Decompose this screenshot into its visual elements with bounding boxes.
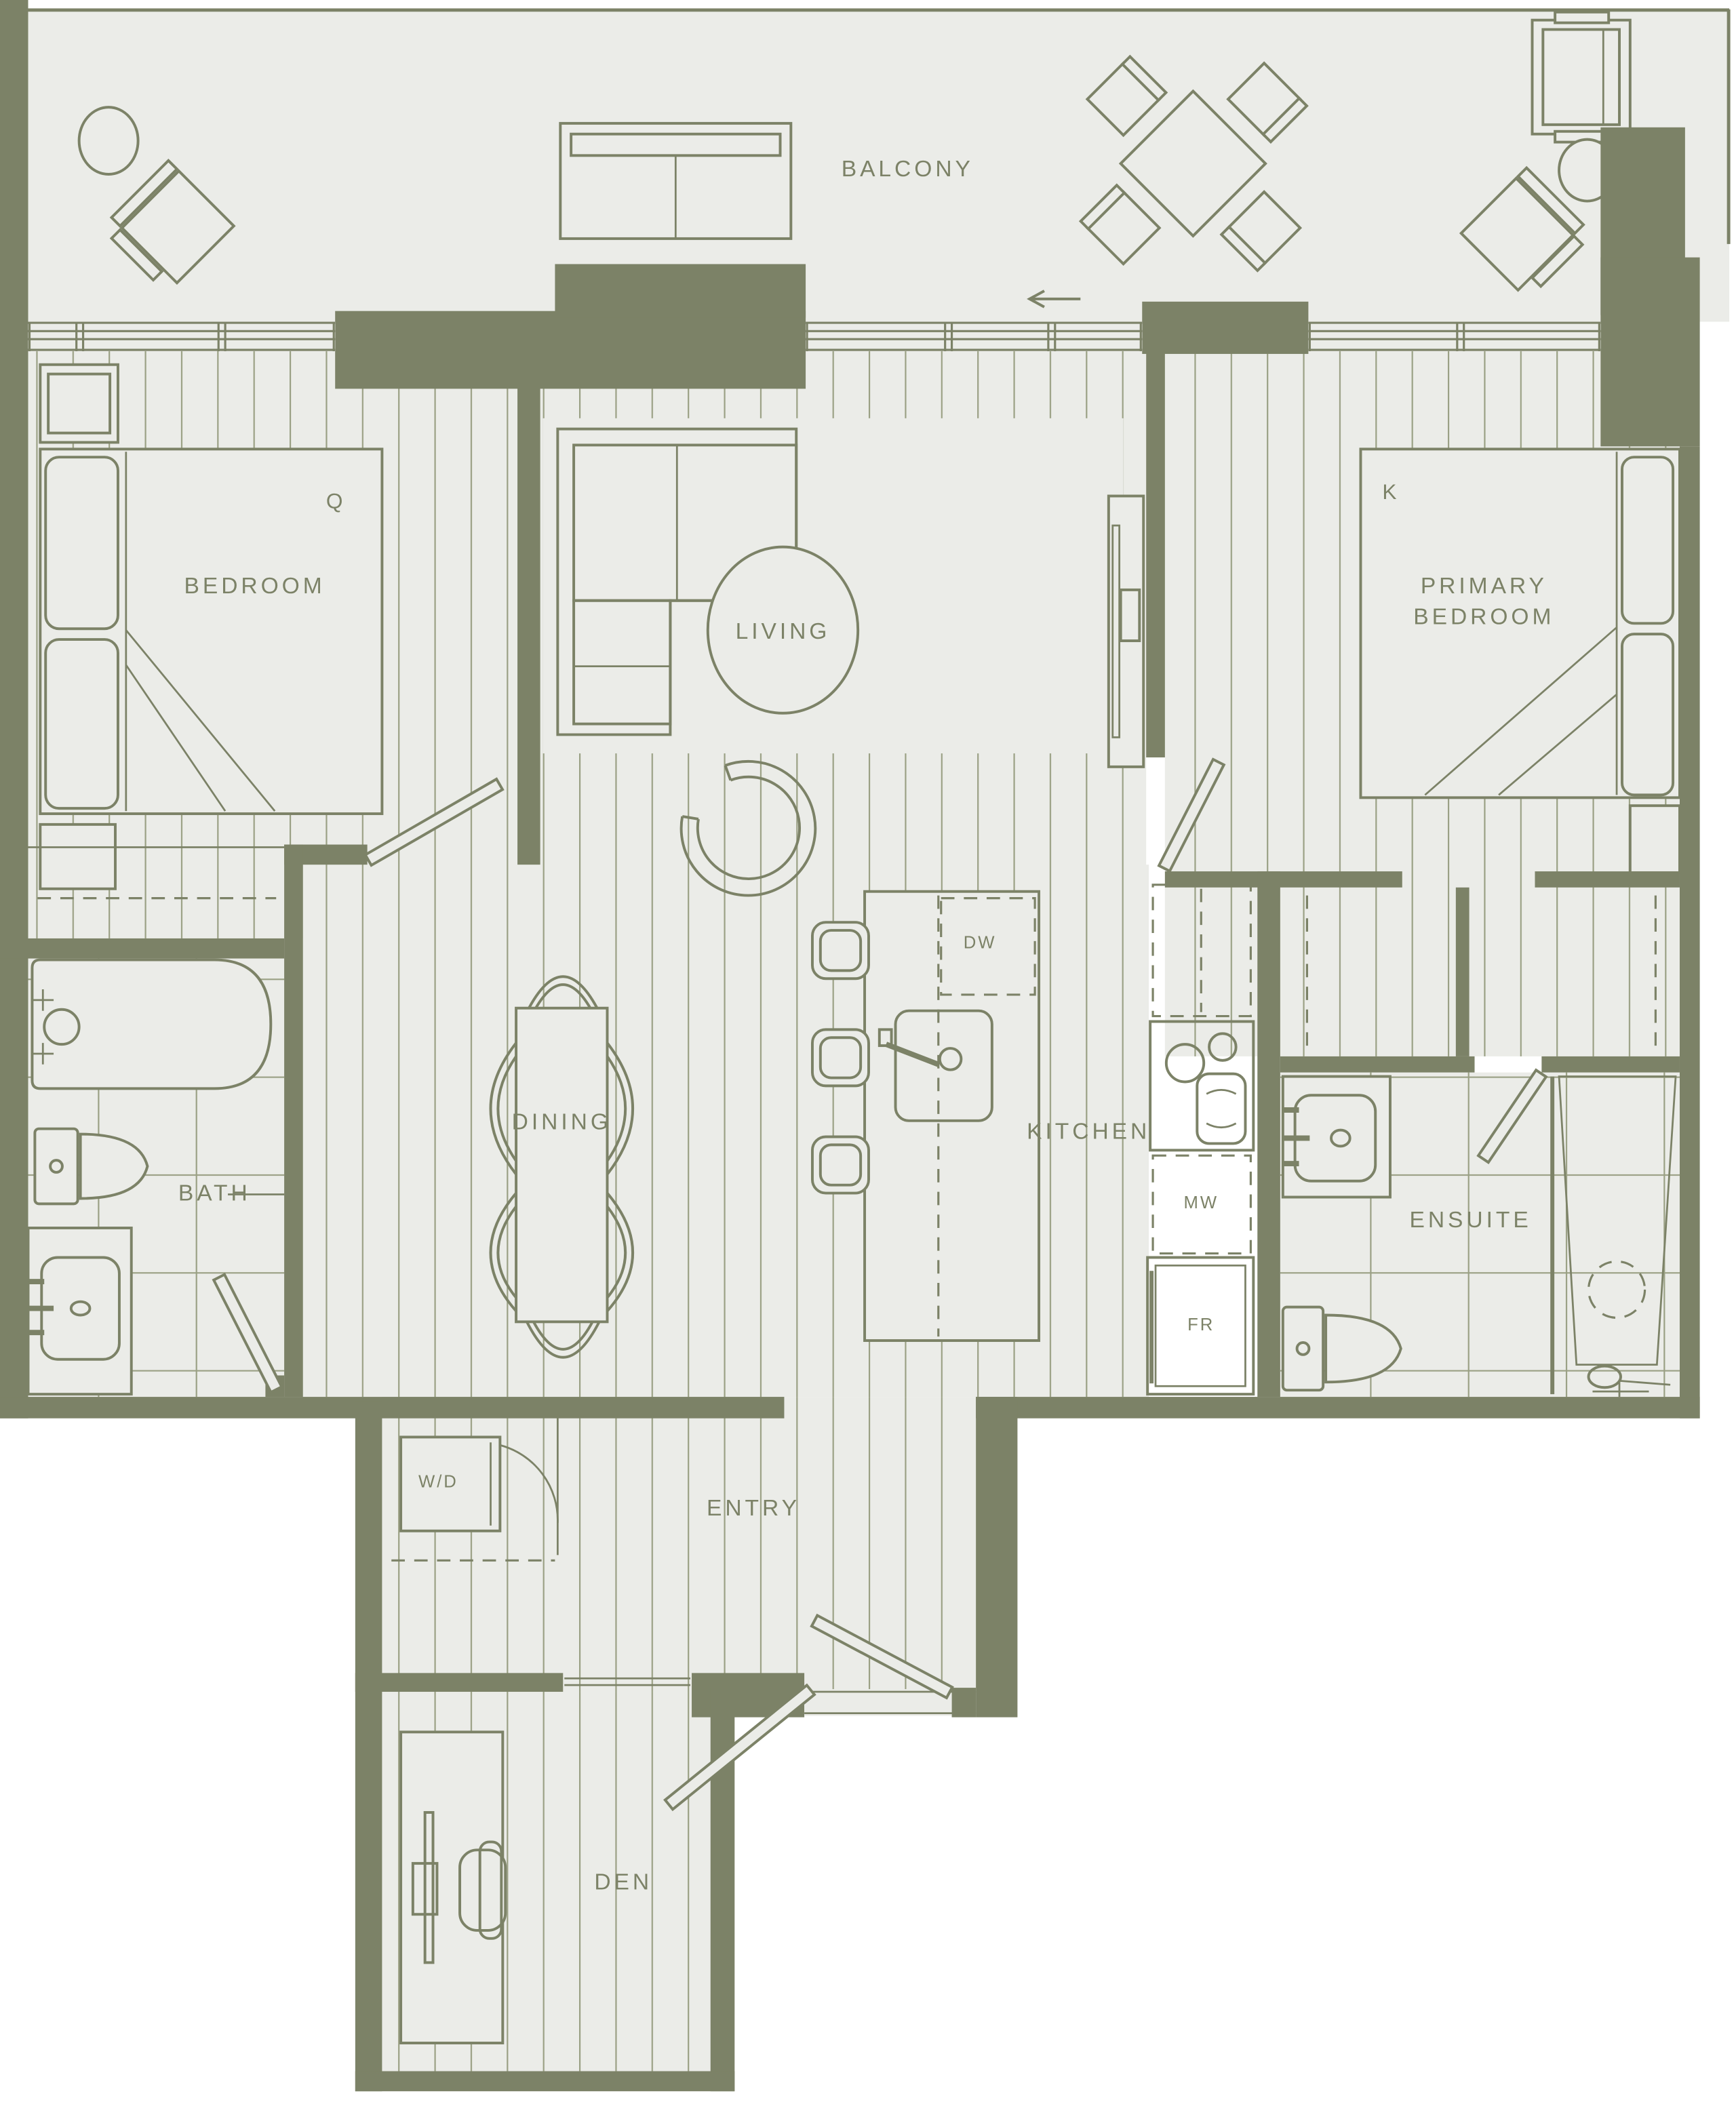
- room-label-kitchen: KITCHEN: [1027, 1119, 1150, 1144]
- room-label-bath: BATH: [178, 1181, 251, 1206]
- bedroom-nightstand-bottom: [40, 825, 115, 889]
- room-label-bedroom: BEDROOM: [184, 574, 325, 599]
- bed-size-label: K: [1382, 479, 1398, 504]
- room-label-primary-1: PRIMARY: [1421, 574, 1547, 599]
- microwave-label: MW: [1183, 1193, 1219, 1212]
- room-label-dining: DINING: [512, 1110, 612, 1135]
- bathtub: [32, 960, 271, 1089]
- primary-nightstand-bottom: [1630, 806, 1680, 873]
- bed-size-label: Q: [326, 489, 344, 513]
- room-label-entry: ENTRY: [707, 1496, 800, 1521]
- room-label-balcony: BALCONY: [842, 157, 974, 182]
- dishwasher-label: DW: [964, 934, 997, 953]
- kitchen-island: [865, 892, 1039, 1341]
- window-bedroom: [28, 321, 336, 351]
- floor-plan: BALCONY LIVING: [0, 0, 1736, 2102]
- bath-vanity: [28, 1228, 132, 1394]
- dining-table: [516, 1008, 607, 1322]
- bar-stools: [812, 922, 869, 1193]
- window-primary: [1308, 321, 1600, 351]
- tv-console: [1109, 496, 1143, 767]
- room-label-primary-2: BEDROOM: [1413, 604, 1554, 629]
- desk-chair: [460, 1850, 505, 1930]
- balcony: BALCONY: [28, 9, 1730, 322]
- balcony-lounger: [1533, 12, 1630, 142]
- room-label-den: DEN: [594, 1870, 652, 1895]
- ensuite-vanity: [1283, 1077, 1390, 1197]
- balcony-loveseat: [560, 123, 791, 239]
- washer-dryer-label: W/D: [418, 1472, 458, 1491]
- windows: [28, 321, 1601, 351]
- bedroom-nightstand-top: [40, 365, 118, 443]
- room-label-ensuite: ENSUITE: [1409, 1208, 1531, 1233]
- room-label-living: LIVING: [736, 619, 831, 644]
- window-living-hall: [806, 321, 1142, 351]
- fridge-label: FR: [1187, 1315, 1215, 1334]
